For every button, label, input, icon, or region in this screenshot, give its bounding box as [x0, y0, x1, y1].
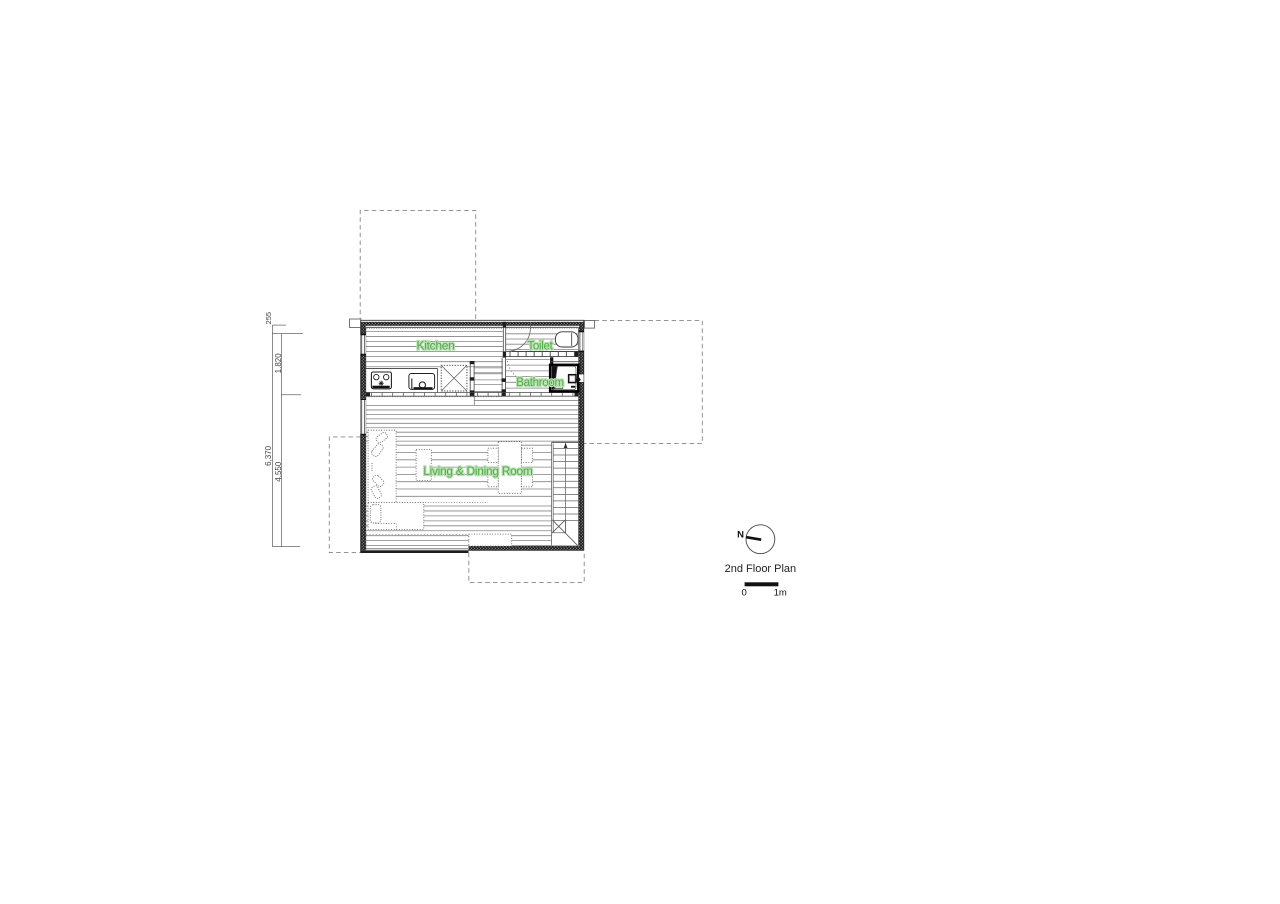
svg-text:Living & Dining Room: Living & Dining Room	[423, 464, 533, 478]
svg-text:4,550: 4,550	[274, 461, 283, 482]
svg-text:1m: 1m	[774, 587, 787, 598]
svg-text:255: 255	[264, 312, 273, 325]
svg-text:N: N	[737, 530, 744, 541]
svg-text:2nd Floor Plan: 2nd Floor Plan	[725, 563, 797, 575]
svg-text:Toilet: Toilet	[527, 340, 553, 352]
svg-text:Kitchen: Kitchen	[417, 339, 455, 353]
svg-text:0: 0	[742, 587, 747, 598]
svg-text:1,820: 1,820	[274, 353, 283, 374]
svg-text:Bathroom: Bathroom	[516, 377, 563, 389]
svg-text:6,370: 6,370	[264, 445, 273, 466]
